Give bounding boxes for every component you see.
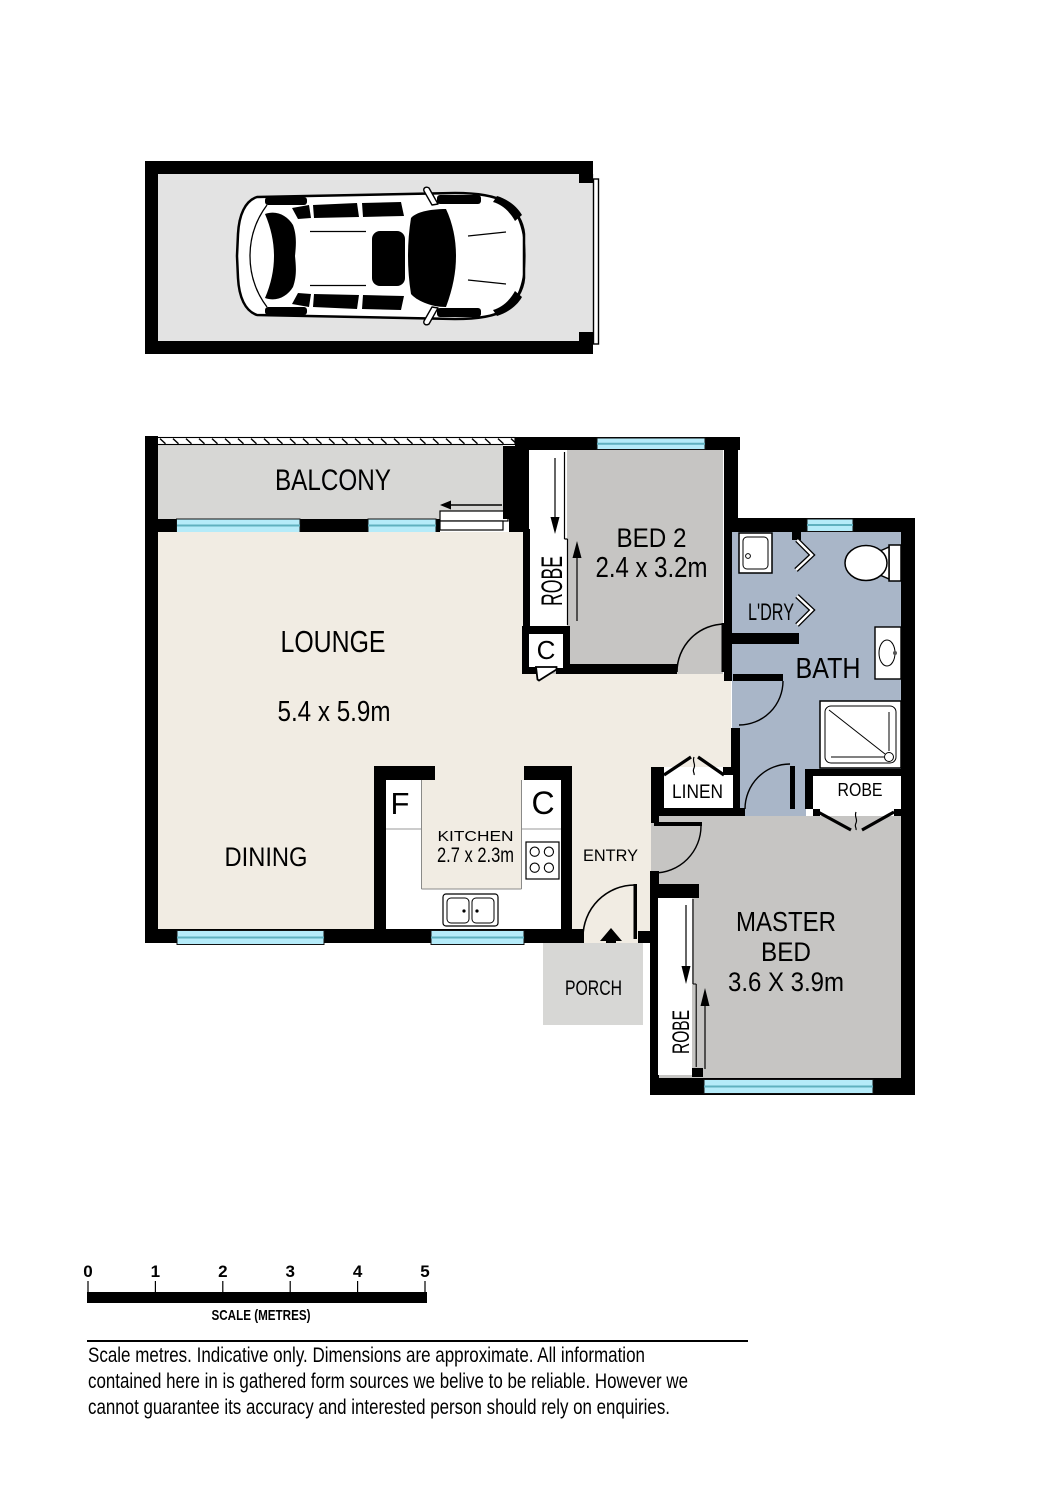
svg-text:BED 2: BED 2: [617, 523, 687, 553]
svg-text:F: F: [391, 786, 410, 821]
svg-text:2.7 x 2.3m: 2.7 x 2.3m: [437, 844, 514, 867]
svg-text:LINEN: LINEN: [672, 782, 723, 803]
svg-text:L'DRY: L'DRY: [748, 599, 794, 626]
svg-text:DINING: DINING: [225, 842, 308, 872]
svg-text:C: C: [537, 635, 556, 665]
svg-text:5: 5: [420, 1262, 429, 1281]
svg-text:SCALE (METRES): SCALE (METRES): [212, 1307, 311, 1324]
svg-text:contained here in is gathered: contained here in is gathered form sourc…: [88, 1370, 688, 1393]
svg-text:Scale metres. Indicative only.: Scale metres. Indicative only. Dimension…: [88, 1344, 645, 1367]
svg-text:ROBE: ROBE: [838, 779, 883, 800]
svg-text:LOUNGE: LOUNGE: [281, 624, 386, 659]
svg-text:PORCH: PORCH: [565, 977, 622, 1000]
svg-text:ROBE: ROBE: [536, 556, 569, 606]
svg-text:0: 0: [83, 1262, 92, 1281]
svg-text:cannot guarantee its accuracy: cannot guarantee its accuracy and intere…: [88, 1396, 670, 1419]
svg-text:3.6 X 3.9m: 3.6 X 3.9m: [728, 967, 844, 997]
svg-text:1: 1: [151, 1262, 160, 1281]
svg-text:ENTRY: ENTRY: [583, 846, 638, 865]
svg-text:KITCHEN: KITCHEN: [438, 828, 514, 845]
svg-text:BED: BED: [761, 937, 811, 967]
svg-text:4: 4: [353, 1262, 363, 1281]
svg-text:2: 2: [218, 1262, 227, 1281]
svg-text:3: 3: [285, 1262, 294, 1281]
svg-text:BALCONY: BALCONY: [275, 464, 391, 497]
svg-text:BATH: BATH: [796, 653, 861, 685]
svg-text:5.4 x 5.9m: 5.4 x 5.9m: [278, 696, 391, 728]
svg-text:2.4 x 3.2m: 2.4 x 3.2m: [596, 552, 708, 584]
svg-text:C: C: [531, 785, 554, 821]
svg-text:ROBE: ROBE: [668, 1010, 695, 1054]
svg-text:MASTER: MASTER: [736, 906, 836, 937]
